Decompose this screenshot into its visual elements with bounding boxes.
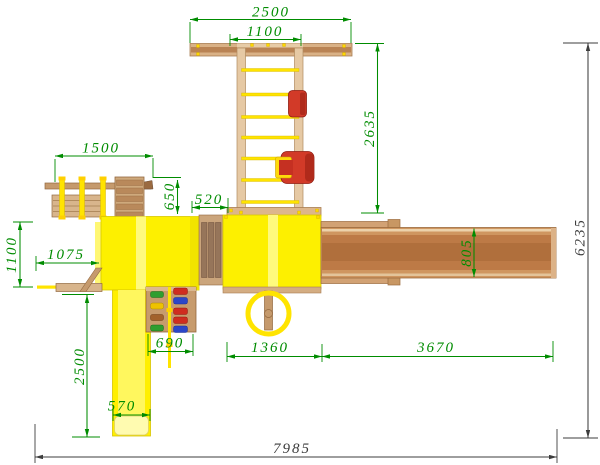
hold-green — [151, 325, 164, 331]
ramp-module — [321, 220, 556, 286]
bridge-slat — [209, 223, 215, 278]
swing-rung — [242, 201, 300, 204]
ladder-slat — [117, 196, 143, 202]
hold-blue — [174, 298, 188, 305]
bridge-slats — [202, 223, 222, 278]
left-roof-shade — [190, 217, 199, 291]
bar-cap — [59, 177, 66, 181]
dim-label-520: 520 — [195, 192, 224, 208]
dim-label-2500-left: 2500 — [72, 347, 88, 385]
baby-seat-cushion — [279, 160, 293, 175]
ramp-highlight-top — [322, 229, 555, 232]
dot — [197, 45, 200, 48]
hold-brown — [151, 315, 164, 321]
dot — [343, 53, 346, 56]
bridge-slat — [202, 223, 208, 278]
dot — [230, 209, 233, 212]
hold-red — [174, 308, 188, 315]
rope-knot — [167, 308, 173, 312]
dim-label-1100-top: 1100 — [247, 24, 284, 40]
dot — [197, 53, 200, 56]
swing-rung — [242, 69, 300, 72]
hanging-bar — [60, 179, 65, 219]
drawing-canvas: 2500 1100 2635 1500 650 520 1075 — [0, 0, 600, 465]
hold-yellow — [151, 303, 164, 309]
dim-label-1500: 1500 — [82, 141, 120, 157]
bar-cap — [79, 177, 86, 181]
ramp-beam-core — [322, 243, 555, 261]
ramp-end-cap — [551, 228, 556, 278]
swing-rung — [242, 136, 300, 139]
dot — [283, 44, 286, 47]
left-roof-ridge — [136, 217, 146, 291]
ladder-slat — [117, 188, 143, 194]
slide-exit-flap — [115, 416, 149, 435]
dim-label-1100-left: 1100 — [4, 236, 20, 273]
dim-label-7985: 7985 — [273, 441, 311, 457]
dim-label-3670: 3670 — [416, 340, 455, 356]
dot — [343, 45, 346, 48]
dot — [267, 44, 270, 47]
dot — [316, 209, 319, 212]
dim-label-2635: 2635 — [362, 109, 378, 147]
baby-seat-back — [305, 154, 314, 182]
playground-top-view-drawing: 2500 1100 2635 1500 650 520 1075 — [0, 0, 600, 465]
ladder-slat — [117, 204, 143, 210]
bridge-slat — [216, 223, 222, 278]
climbing-rope — [168, 287, 171, 368]
ladder-slat — [117, 180, 143, 186]
hold-red — [174, 317, 188, 324]
left-tower-roof — [101, 217, 199, 291]
swing-hanger-strip — [237, 44, 303, 48]
dim-label-2500-top: 2500 — [252, 5, 290, 21]
ramp-highlight-bottom — [322, 274, 555, 277]
swing-rail-right — [295, 48, 304, 215]
steering-wheel-hub — [265, 310, 273, 318]
dim-label-6235: 6235 — [573, 218, 589, 256]
dim-label-1075: 1075 — [47, 247, 85, 263]
bar-cap — [100, 177, 107, 181]
swing-rail-left — [237, 48, 246, 215]
balance-plank — [56, 284, 102, 292]
slide-bed — [118, 290, 145, 416]
bar-cap — [79, 216, 86, 220]
hold-blue — [174, 326, 188, 333]
right-roof-ridge — [268, 215, 278, 289]
dim-label-1360: 1360 — [251, 340, 289, 356]
swing-seat-flat-edge — [300, 93, 306, 116]
dot — [251, 44, 254, 47]
dim-label-690: 690 — [156, 336, 185, 352]
dot — [225, 216, 228, 219]
hanging-bar — [101, 179, 106, 219]
hold-green — [151, 292, 164, 298]
swing-seat-baby — [276, 152, 315, 184]
hanging-bar — [80, 179, 85, 219]
dot — [240, 211, 243, 214]
gym-module — [45, 177, 153, 220]
dim-label-650: 650 — [162, 182, 178, 211]
dim-label-570: 570 — [108, 399, 137, 415]
dim-label-805: 805 — [459, 238, 475, 267]
swing-crossbeam-core — [191, 47, 351, 53]
hold-red — [174, 288, 188, 295]
dot — [298, 211, 301, 214]
dot — [317, 216, 320, 219]
bar-cap — [59, 216, 66, 220]
